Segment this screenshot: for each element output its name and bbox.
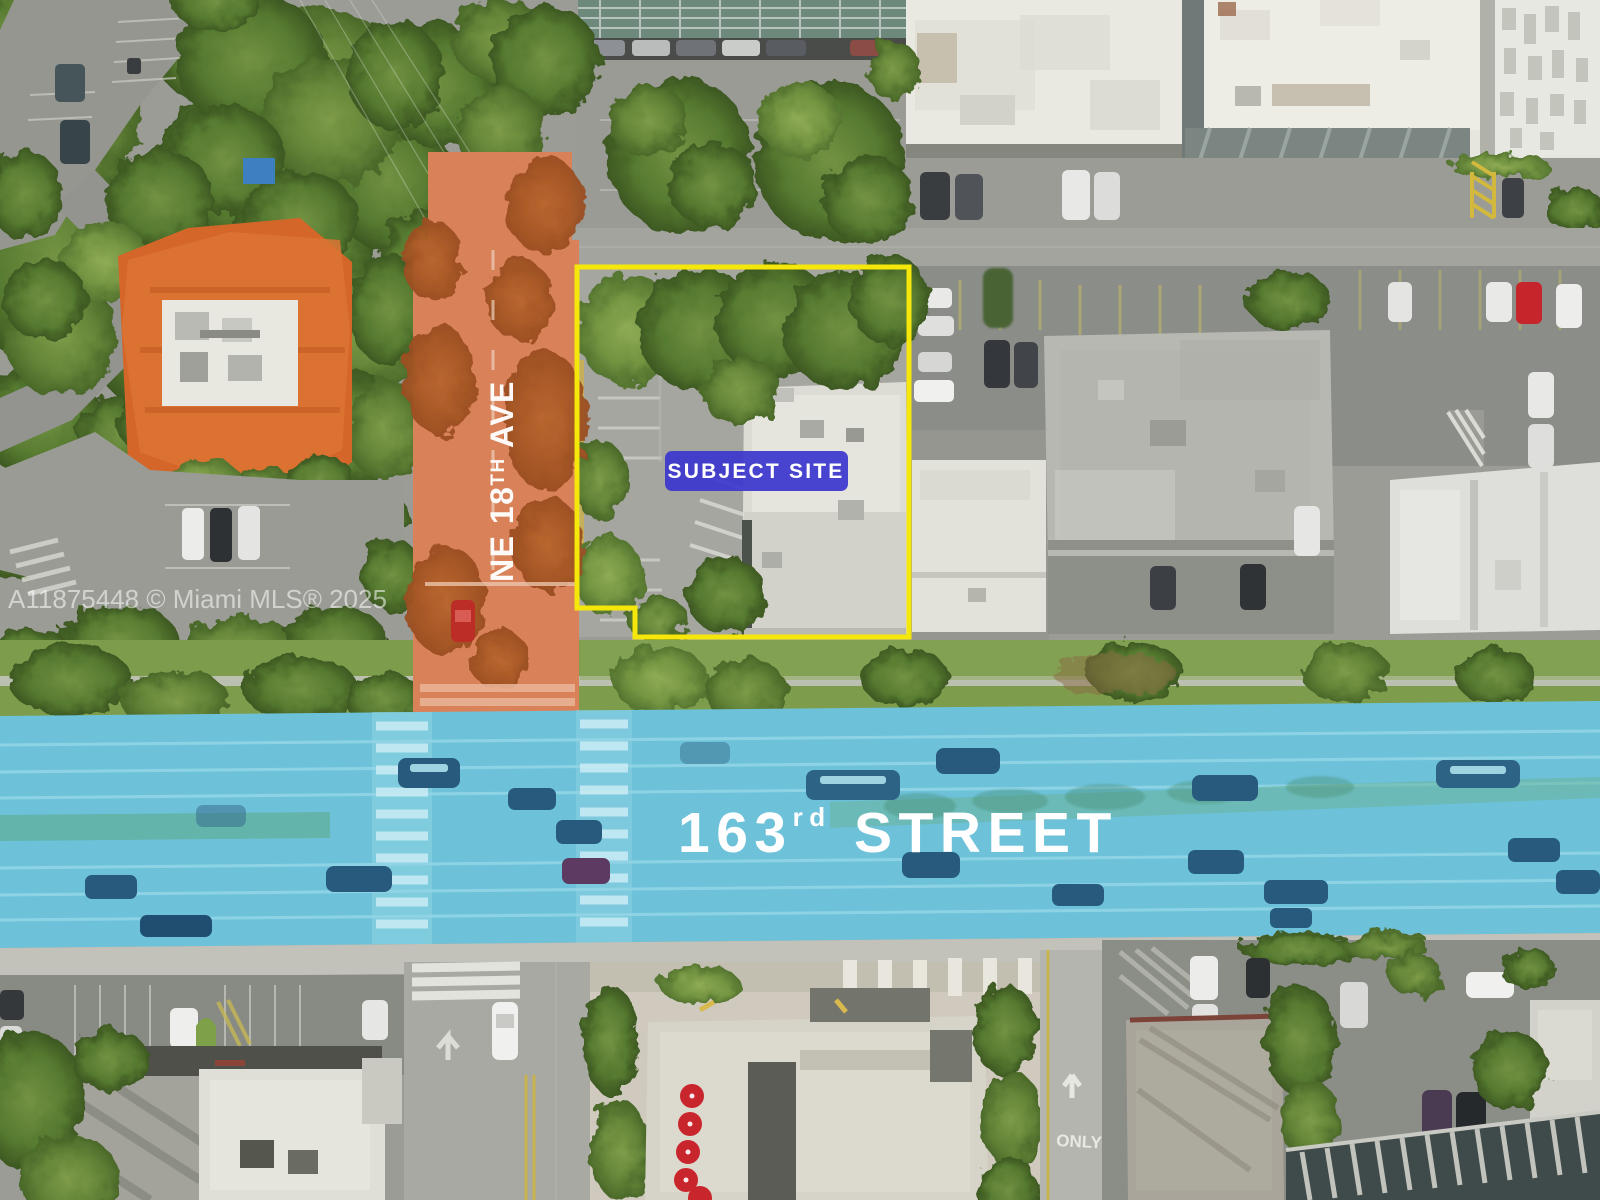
svg-text:SUBJECT SITE: SUBJECT SITE — [668, 460, 845, 483]
svg-text:ONLY: ONLY — [1056, 1131, 1103, 1152]
svg-text:163rd STREET: 163rd STREET — [678, 801, 1118, 865]
svg-text:A11875448 © Miami MLS® 2025: A11875448 © Miami MLS® 2025 — [8, 584, 387, 614]
